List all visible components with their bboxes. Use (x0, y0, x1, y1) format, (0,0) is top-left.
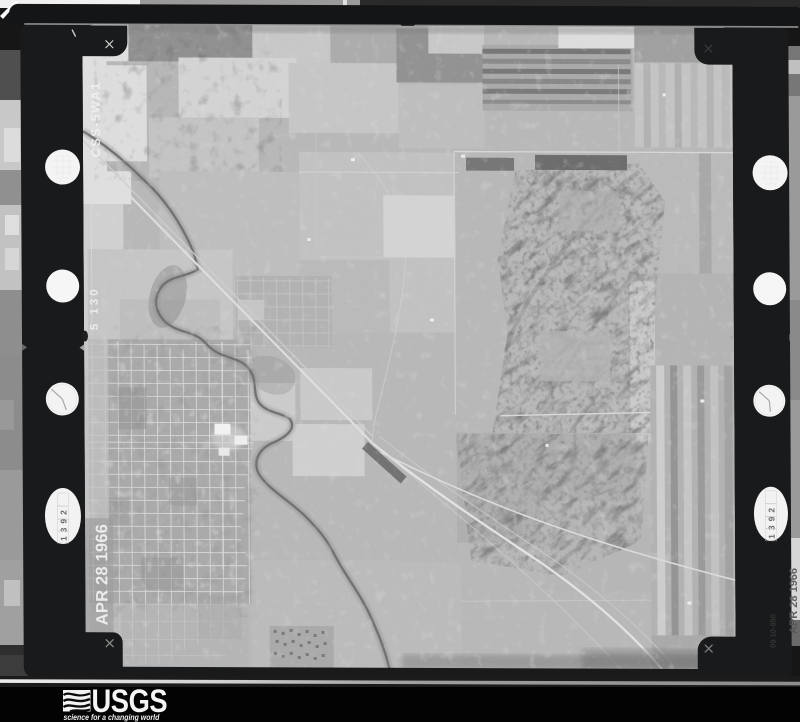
svg-text:science for a changing world: science for a changing world (64, 712, 160, 722)
svg-text:1392: 1392 (58, 506, 68, 541)
svg-text:5 130: 5 130 (89, 286, 101, 330)
svg-text:09 10-850: 09 10-850 (768, 614, 777, 648)
svg-text:CSS-5WA1: CSS-5WA1 (89, 81, 103, 157)
svg-text:1392: 1392 (766, 504, 776, 539)
svg-text:APR 28 1966: APR 28 1966 (788, 568, 800, 634)
svg-text:APR 28 1966: APR 28 1966 (93, 524, 112, 625)
